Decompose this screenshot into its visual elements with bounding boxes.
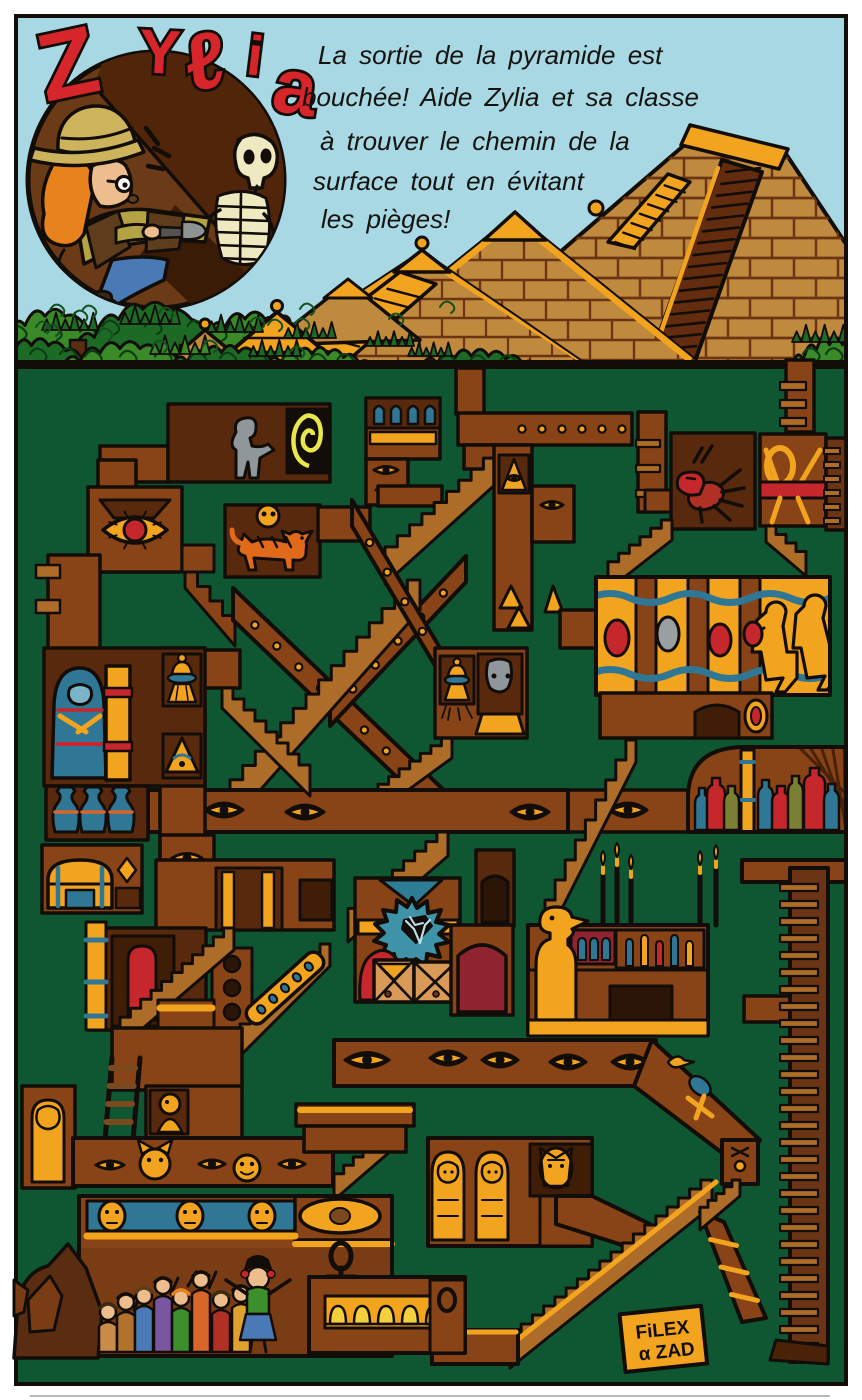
svg-text:La sortie de la pyramide est: La sortie de la pyramide est (318, 40, 664, 70)
svg-text:Y: Y (137, 17, 182, 88)
svg-text:les pièges!: les pièges! (321, 204, 450, 234)
svg-text:à trouver le chemin de la: à trouver le chemin de la (320, 126, 630, 156)
svg-text:bouchée! Aide Zylia et sa clas: bouchée! Aide Zylia et sa classe (302, 82, 699, 112)
svg-text:ℓ: ℓ (182, 15, 229, 107)
svg-text:surface tout en évitant: surface tout en évitant (313, 166, 586, 196)
